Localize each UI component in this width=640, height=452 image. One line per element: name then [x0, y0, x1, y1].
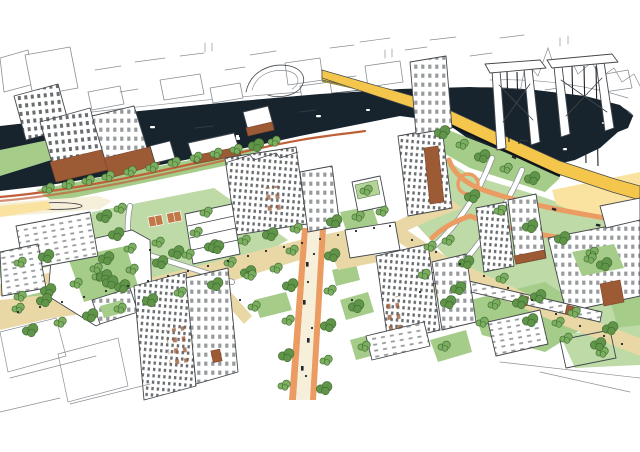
- mid-rise-block: [134, 272, 196, 400]
- illustration-canvas: [0, 0, 640, 452]
- masterplan-illustration: [0, 0, 640, 452]
- high-rise: [410, 56, 452, 134]
- mid-rise-block: [225, 147, 307, 235]
- slab-roof-plan: [0, 244, 46, 296]
- high-rise: [398, 128, 452, 216]
